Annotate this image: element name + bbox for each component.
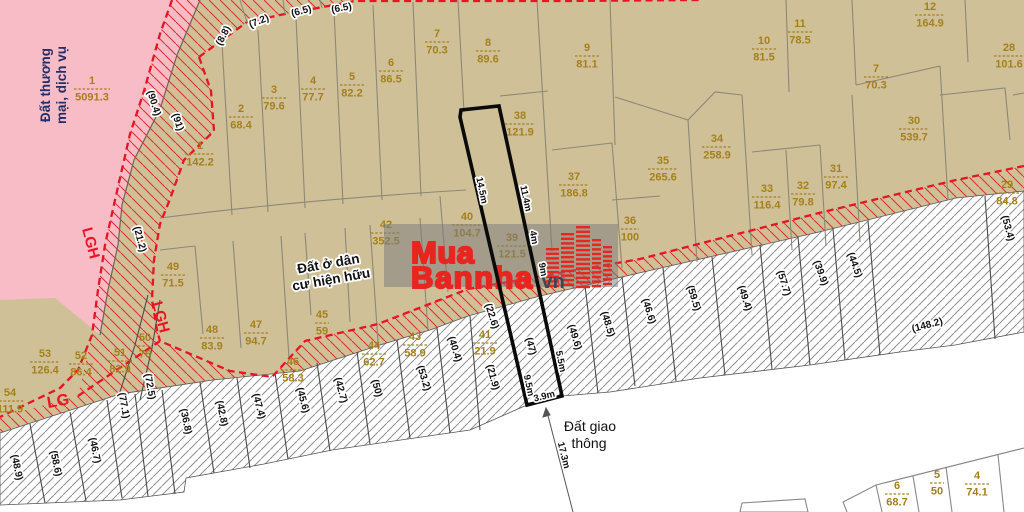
svg-text:51: 51 [114,347,126,359]
svg-text:7: 7 [873,63,879,75]
svg-text:186.8: 186.8 [560,188,588,200]
svg-text:116.4: 116.4 [754,200,782,212]
svg-text:29: 29 [1001,179,1013,191]
svg-text:1: 1 [197,140,203,152]
svg-text:35: 35 [657,155,669,167]
svg-text:79.8: 79.8 [792,197,813,209]
svg-text:53: 53 [39,348,51,360]
svg-text:28: 28 [1003,42,1015,54]
svg-text:70.3: 70.3 [865,80,886,92]
svg-text:4: 4 [310,75,317,87]
svg-text:31: 31 [830,163,842,175]
svg-text:258.9: 258.9 [703,150,731,162]
svg-text:48: 48 [206,324,218,336]
svg-text:71.5: 71.5 [162,278,183,290]
svg-text:10: 10 [758,35,770,47]
svg-text:78.5: 78.5 [789,35,810,47]
svg-text:38: 38 [514,110,526,122]
svg-text:36: 36 [624,215,636,227]
svg-text:Đất thương: Đất thương [38,48,53,122]
svg-text:6: 6 [388,57,394,69]
svg-text:49: 49 [167,261,179,273]
svg-text:47: 47 [250,319,262,331]
svg-text:58.9: 58.9 [404,348,425,360]
svg-text:54: 54 [4,387,17,399]
svg-text:30: 30 [908,115,920,127]
svg-text:86.5: 86.5 [380,74,401,86]
svg-text:50: 50 [139,332,151,344]
svg-text:81.5: 81.5 [753,52,774,64]
svg-text:94.7: 94.7 [245,336,266,348]
svg-text:5091.3: 5091.3 [75,92,109,104]
svg-text:1: 1 [89,75,95,87]
svg-text:52: 52 [75,350,87,362]
svg-text:46: 46 [287,356,299,368]
svg-text:83.9: 83.9 [201,341,222,353]
svg-text:86.4: 86.4 [70,367,92,379]
svg-text:9m: 9m [536,262,549,277]
svg-text:7: 7 [434,28,440,40]
svg-text:43: 43 [409,331,421,343]
svg-text:62.7: 62.7 [363,357,384,369]
svg-text:77.7: 77.7 [302,92,323,104]
svg-text:126.4: 126.4 [31,365,59,377]
svg-text:101.6: 101.6 [995,59,1023,71]
svg-text:5: 5 [349,71,355,83]
svg-text:79.6: 79.6 [263,101,284,113]
svg-text:41: 41 [479,329,491,341]
svg-text:81.1: 81.1 [576,59,597,71]
svg-text:58.3: 58.3 [282,373,303,385]
svg-text:50: 50 [931,486,943,498]
svg-text:100: 100 [621,232,639,244]
svg-text:11: 11 [794,18,806,30]
svg-text:82.9: 82.9 [109,364,130,376]
svg-text:32: 32 [797,180,809,192]
svg-text:4m: 4m [527,230,540,245]
svg-text:142.2: 142.2 [186,157,214,169]
svg-text:265.6: 265.6 [649,172,677,184]
svg-text:2: 2 [238,103,244,115]
svg-text:84.8: 84.8 [996,196,1017,208]
svg-text:89.6: 89.6 [477,54,498,66]
svg-text:12: 12 [924,1,936,13]
svg-text:8: 8 [485,37,491,49]
svg-text:82.2: 82.2 [341,88,362,100]
svg-text:37: 37 [568,171,580,183]
svg-text:59: 59 [316,326,328,338]
svg-text:164.9: 164.9 [916,18,944,30]
svg-text:70.3: 70.3 [426,45,447,57]
svg-text:6: 6 [894,480,900,492]
svg-text:121.9: 121.9 [506,127,534,139]
svg-text:4: 4 [974,470,981,482]
svg-text:21.9: 21.9 [474,346,495,358]
svg-text:68.7: 68.7 [886,497,907,509]
svg-text:Bannha: Bannha [411,260,534,295]
svg-text:74.1: 74.1 [966,487,987,499]
svg-text:97.4: 97.4 [825,180,847,192]
svg-text:3: 3 [271,84,277,96]
svg-text:76: 76 [139,349,151,361]
svg-text:5: 5 [934,469,940,481]
svg-text:111.9: 111.9 [0,404,23,416]
svg-text:33: 33 [761,183,773,195]
svg-text:40: 40 [461,211,473,223]
svg-text:68.4: 68.4 [230,120,252,132]
svg-text:Đất giao: Đất giao [564,418,616,434]
svg-text:9: 9 [584,42,590,54]
svg-text:mại, dịch vụ: mại, dịch vụ [54,46,69,124]
svg-text:45: 45 [316,309,328,321]
svg-text:44: 44 [368,340,381,352]
svg-text:thông: thông [571,435,606,451]
svg-text:539.7: 539.7 [900,132,928,144]
svg-text:34: 34 [711,133,724,145]
